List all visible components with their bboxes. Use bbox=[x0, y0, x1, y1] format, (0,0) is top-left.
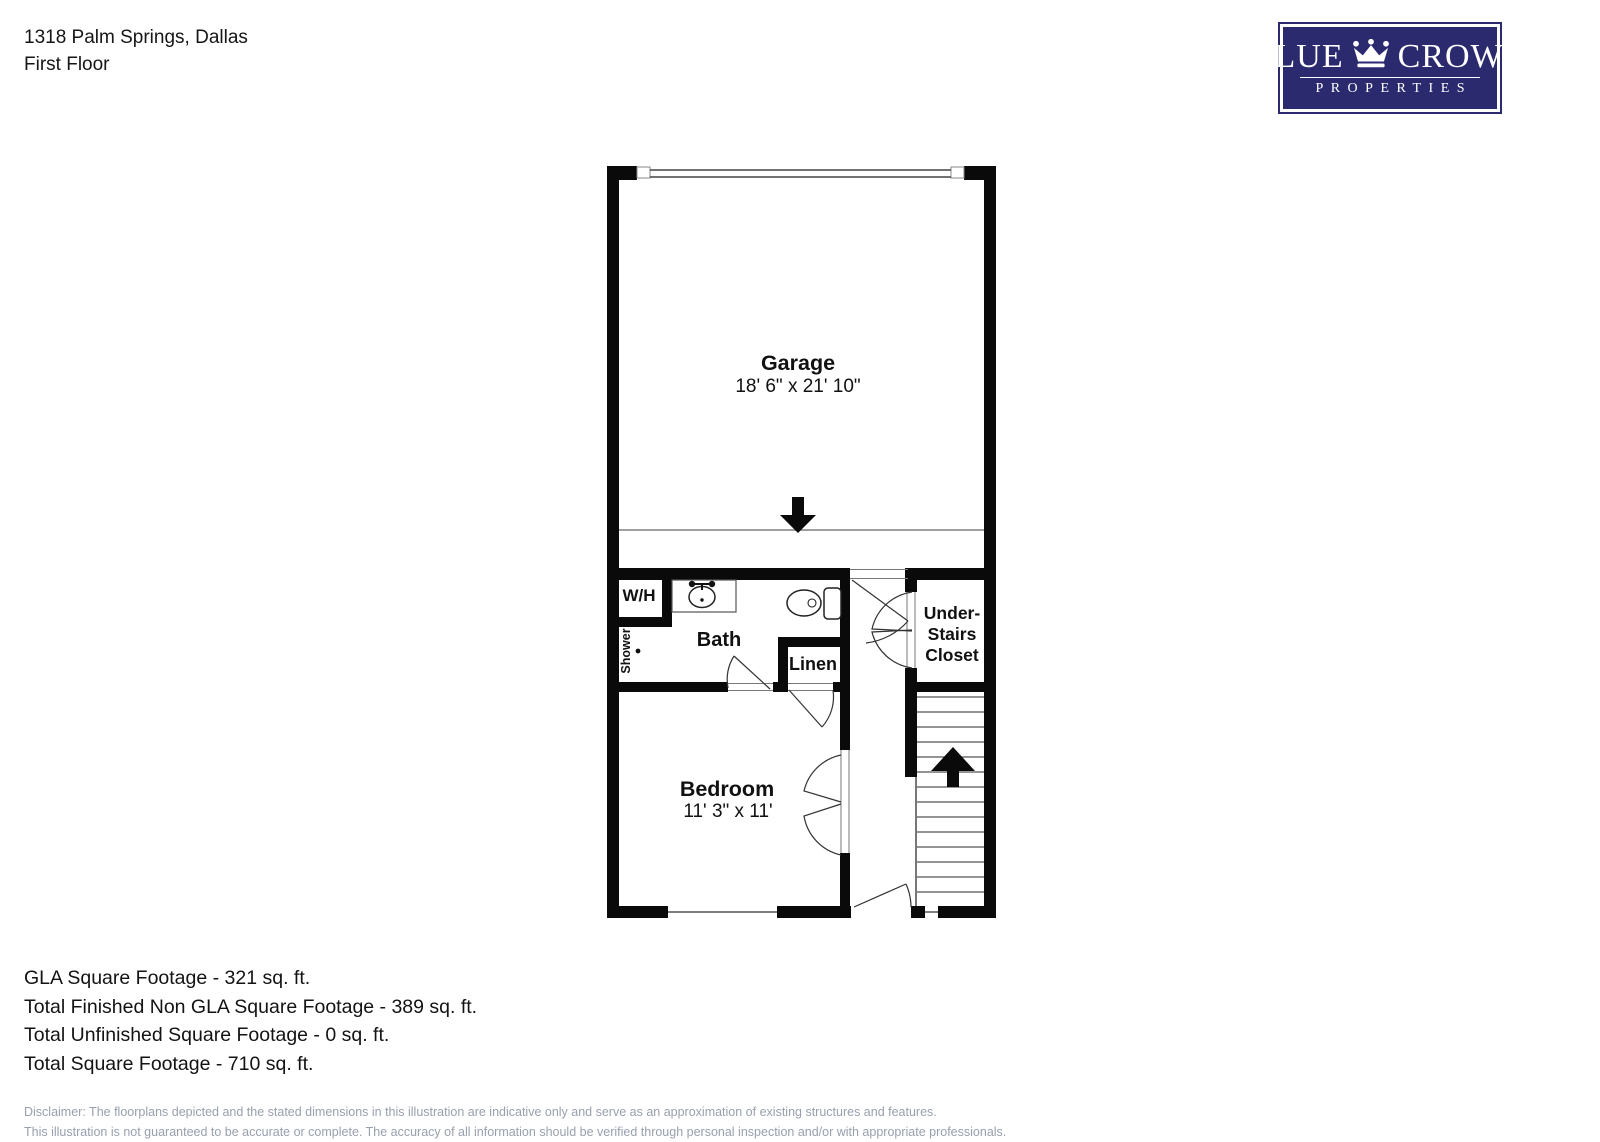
bedroom-label: Bedroom bbox=[680, 777, 774, 801]
summary-line: Total Finished Non GLA Square Footage - … bbox=[24, 993, 477, 1022]
shower-label: Shower bbox=[619, 628, 633, 673]
understairs-line2: Stairs bbox=[928, 624, 977, 644]
understairs-line3: Closet bbox=[925, 645, 979, 665]
garage-dims: 18' 6" x 21' 10" bbox=[735, 376, 860, 397]
linen-label: Linen bbox=[789, 654, 837, 674]
summary-line: Total Unfinished Square Footage - 0 sq. … bbox=[24, 1021, 477, 1050]
understairs-line1: Under- bbox=[924, 603, 981, 623]
summary-line: Total Square Footage - 710 sq. ft. bbox=[24, 1050, 477, 1079]
bath-label: Bath bbox=[697, 629, 741, 651]
toilet-icon bbox=[787, 588, 841, 619]
summary-line: GLA Square Footage - 321 sq. ft. bbox=[24, 964, 477, 993]
walls bbox=[607, 166, 996, 918]
down-arrow-icon bbox=[780, 497, 816, 533]
stairs bbox=[916, 697, 984, 906]
wh-label: W/H bbox=[622, 586, 655, 605]
garage-label: Garage bbox=[761, 351, 835, 375]
square-footage-summary: GLA Square Footage - 321 sq. ft. Total F… bbox=[24, 964, 477, 1078]
door-swings bbox=[727, 580, 912, 907]
disclaimer-line: Disclaimer: The floorplans depicted and … bbox=[24, 1102, 1006, 1122]
disclaimer-line: This illustration is not guaranteed to b… bbox=[24, 1122, 1006, 1142]
floorplan: Garage 18' 6" x 21' 10" Bedroom 11' 3" x… bbox=[0, 0, 1600, 1132]
garage-door bbox=[637, 167, 964, 178]
disclaimer: Disclaimer: The floorplans depicted and … bbox=[24, 1102, 1006, 1142]
bedroom-dims: 11' 3" x 11' bbox=[683, 801, 772, 822]
sink-icon bbox=[672, 580, 736, 612]
up-arrow-icon bbox=[931, 747, 975, 787]
shower-drain bbox=[636, 649, 641, 654]
